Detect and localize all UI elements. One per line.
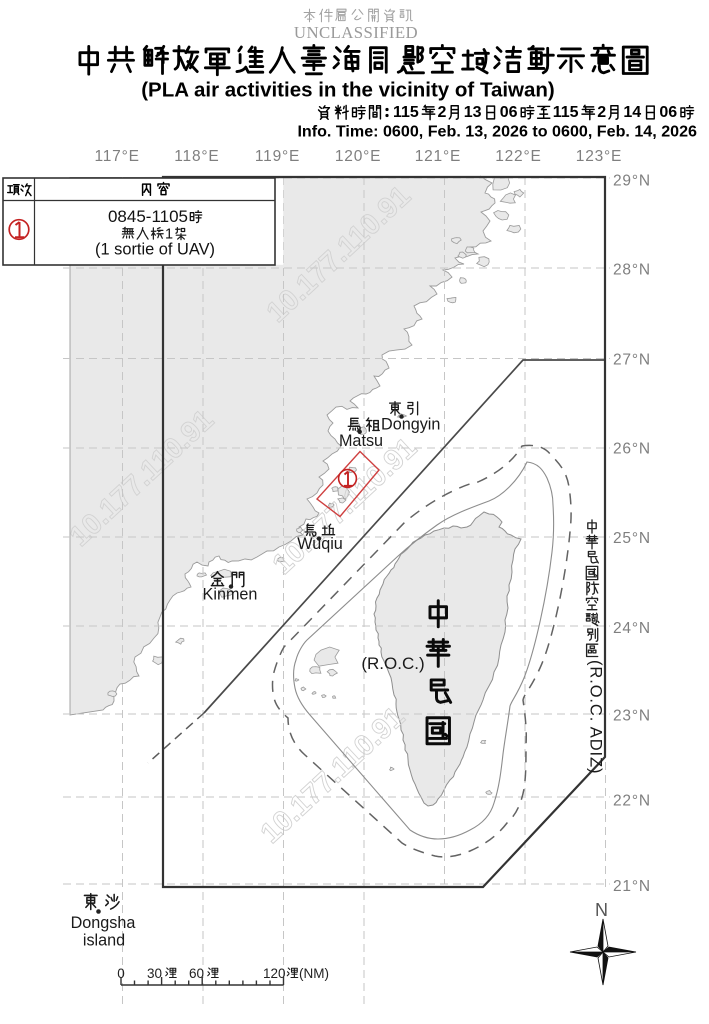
svg-text:Matsu: Matsu bbox=[339, 432, 383, 450]
svg-text:115: 115 bbox=[553, 104, 579, 121]
svg-text:(R.O.C.): (R.O.C.) bbox=[361, 654, 424, 673]
svg-text:Kinmen: Kinmen bbox=[203, 586, 258, 604]
svg-text:06: 06 bbox=[500, 104, 518, 121]
svg-text:118°E: 118°E bbox=[174, 148, 219, 165]
svg-text:Wuqiu: Wuqiu bbox=[297, 535, 343, 553]
svg-text:N: N bbox=[595, 900, 608, 920]
svg-text:115: 115 bbox=[393, 104, 419, 121]
svg-text:(R.O.C. ADIZ): (R.O.C. ADIZ) bbox=[587, 660, 605, 774]
svg-text:60: 60 bbox=[189, 966, 204, 981]
svg-text:2: 2 bbox=[438, 104, 447, 121]
svg-text:Dongyin: Dongyin bbox=[381, 416, 440, 434]
svg-text:123°E: 123°E bbox=[576, 148, 622, 165]
svg-text:23°N: 23°N bbox=[613, 708, 651, 725]
svg-text:120°E: 120°E bbox=[335, 148, 381, 165]
svg-text:30: 30 bbox=[147, 966, 162, 981]
svg-text:28°N: 28°N bbox=[613, 262, 651, 279]
svg-text:29°N: 29°N bbox=[613, 173, 651, 190]
svg-text:121°E: 121°E bbox=[415, 148, 461, 165]
svg-text:13: 13 bbox=[464, 104, 482, 121]
svg-text:22°N: 22°N bbox=[613, 793, 651, 810]
svg-text:0: 0 bbox=[117, 966, 125, 981]
svg-text:Dongsha: Dongsha bbox=[71, 914, 136, 932]
svg-text:island: island bbox=[83, 932, 125, 950]
svg-text:27°N: 27°N bbox=[613, 352, 651, 369]
svg-text:06: 06 bbox=[659, 104, 677, 121]
svg-text:25°N: 25°N bbox=[613, 530, 651, 547]
svg-text:117°E: 117°E bbox=[94, 148, 139, 165]
svg-text:UNCLASSIFIED: UNCLASSIFIED bbox=[294, 23, 418, 42]
svg-text:26°N: 26°N bbox=[613, 441, 651, 458]
svg-text:14: 14 bbox=[623, 104, 641, 121]
svg-text:0845-1105: 0845-1105 bbox=[108, 207, 188, 226]
svg-text:(1 sortie of UAV): (1 sortie of UAV) bbox=[95, 241, 215, 259]
svg-text:(PLA air activities in the vic: (PLA air activities in the vicinity of T… bbox=[141, 79, 555, 102]
svg-text:21°N: 21°N bbox=[613, 878, 651, 895]
svg-text:2: 2 bbox=[597, 104, 606, 121]
svg-text:(NM): (NM) bbox=[299, 966, 329, 981]
svg-text:Info. Time: 0600, Feb. 13, 202: Info. Time: 0600, Feb. 13, 2026 to 0600,… bbox=[297, 123, 697, 141]
svg-text:24°N: 24°N bbox=[613, 620, 651, 637]
svg-text:122°E: 122°E bbox=[495, 148, 541, 165]
svg-text:120: 120 bbox=[263, 966, 286, 981]
svg-text:119°E: 119°E bbox=[255, 148, 300, 165]
